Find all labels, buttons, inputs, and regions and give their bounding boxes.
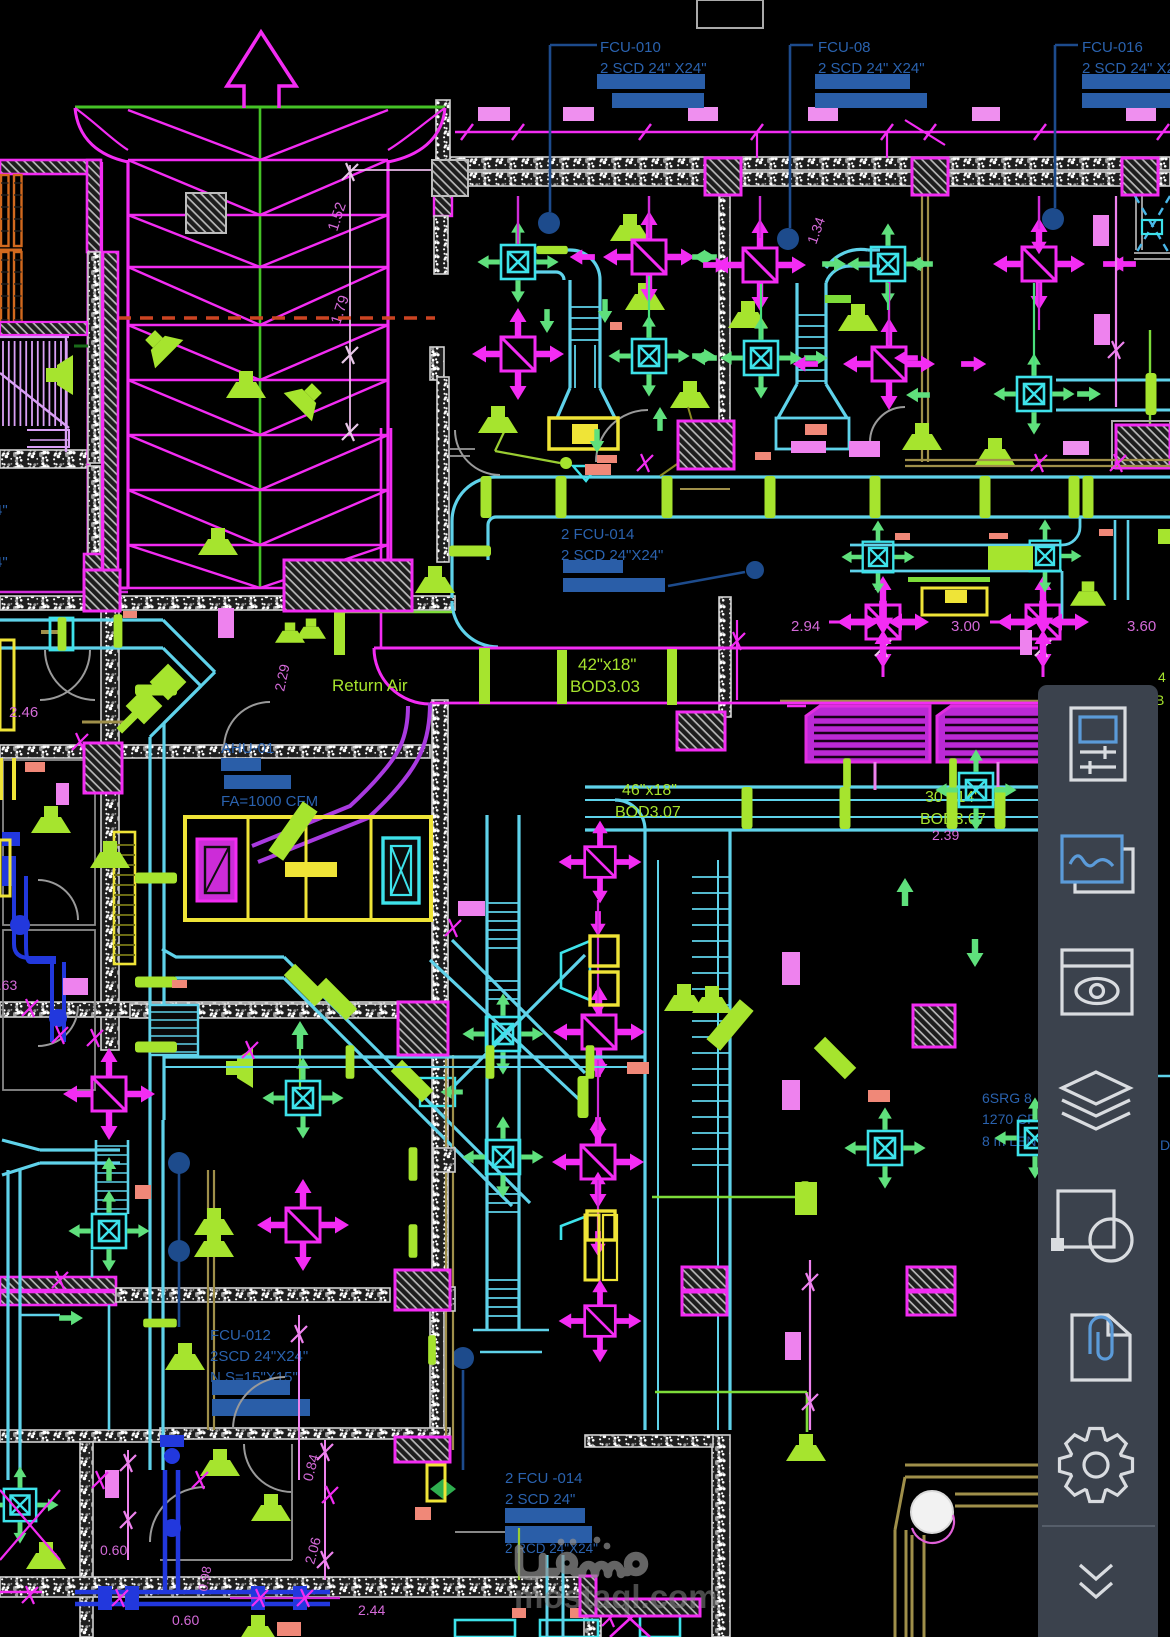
svg-text:AHU-01: AHU-01 [221,740,274,757]
svg-text:3.60: 3.60 [1127,618,1156,635]
svg-text:2 SCD 24": 2 SCD 24" [505,1491,575,1508]
svg-text:2.46: 2.46 [9,704,38,721]
svg-text:6SRG 8: 6SRG 8 [982,1090,1032,1106]
svg-text:2.39: 2.39 [932,827,959,843]
svg-text:BOD3.07: BOD3.07 [615,804,681,821]
svg-text:mostaql.com: mostaql.com [514,1578,718,1615]
svg-text:0.63: 0.63 [0,977,17,993]
svg-text:46"x18": 46"x18" [622,782,677,799]
svg-text:FCU-016: FCU-016 [1082,39,1143,56]
svg-text:FCU-012: FCU-012 [210,1327,271,1344]
svg-text:4": 4" [0,502,8,519]
svg-text:8 m LEN: 8 m LEN [982,1133,1036,1149]
svg-text:0.60: 0.60 [172,1612,199,1628]
svg-text:BOD3.03: BOD3.03 [570,677,640,696]
svg-text:4: 4 [1158,669,1166,685]
svg-text:Return Air: Return Air [332,676,408,695]
svg-text:3.00: 3.00 [951,618,980,635]
svg-text:2 FCU -014: 2 FCU -014 [505,1470,583,1487]
svg-text:2.44: 2.44 [358,1602,385,1618]
svg-text:D: D [1160,1137,1170,1153]
svg-text:0.60: 0.60 [100,1542,127,1558]
svg-text:4": 4" [0,554,8,571]
svg-text:2 FCU-014: 2 FCU-014 [561,526,634,543]
svg-text:2.94: 2.94 [791,618,820,635]
svg-text:2SCD 24"X24": 2SCD 24"X24" [210,1348,308,1365]
svg-text:FCU-08: FCU-08 [818,39,871,56]
svg-text:1270 CF: 1270 CF [982,1111,1036,1127]
svg-text:FCU-010: FCU-010 [600,39,661,56]
svg-text:42"x18": 42"x18" [578,655,636,674]
